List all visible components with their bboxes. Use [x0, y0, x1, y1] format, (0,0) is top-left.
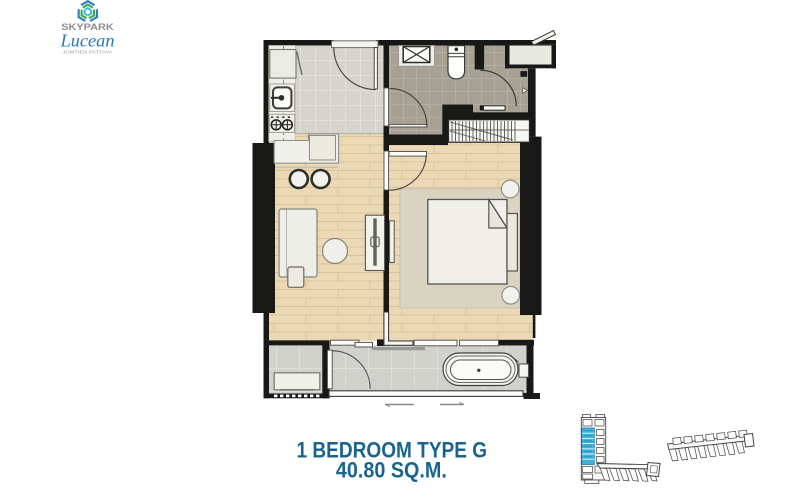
svg-text:40.80 SQ.M.: 40.80 SQ.M.: [336, 458, 447, 483]
svg-text:Lucean: Lucean: [59, 31, 114, 51]
svg-text:JOMTIEN PATTAYA: JOMTIEN PATTAYA: [63, 50, 114, 56]
